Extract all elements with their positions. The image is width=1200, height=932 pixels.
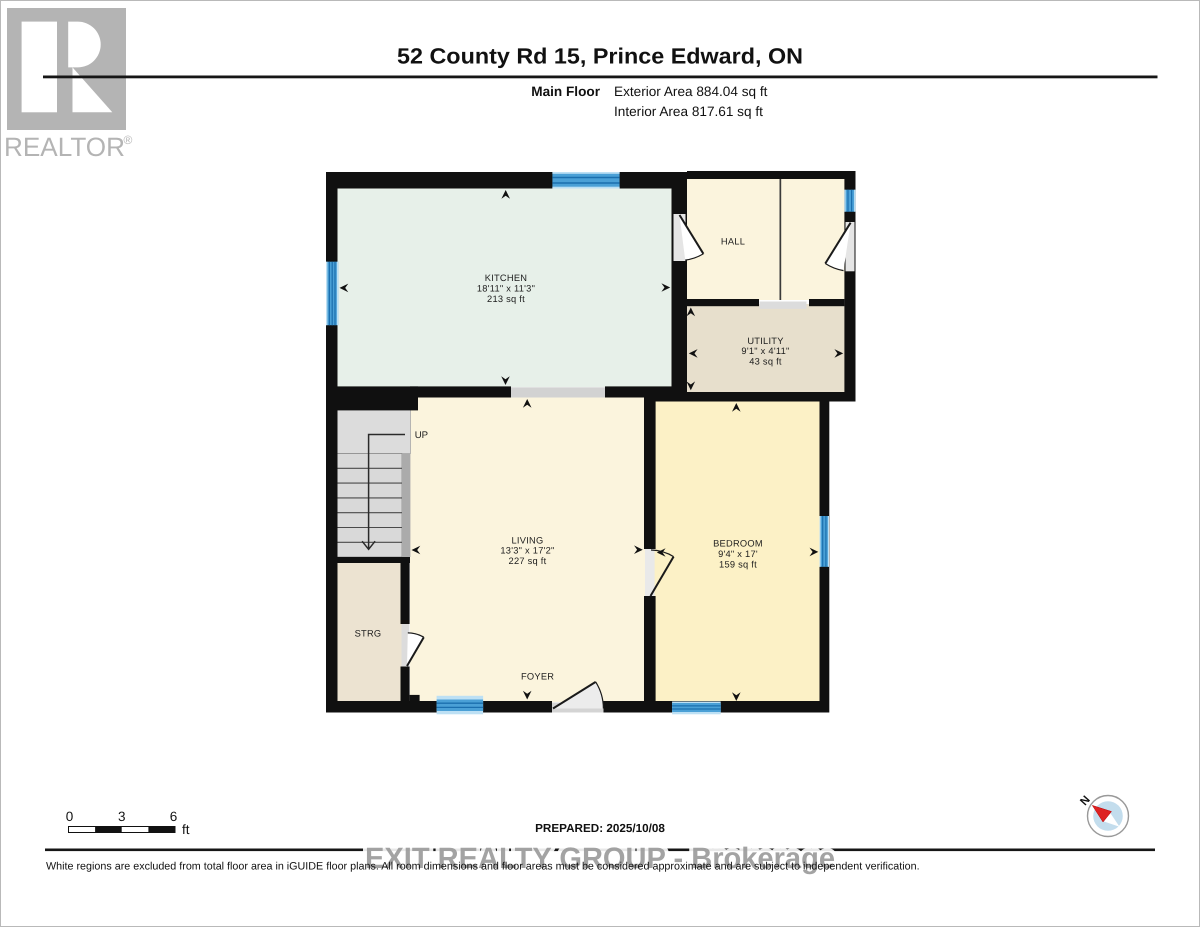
svg-text:REALTOR: REALTOR <box>4 132 125 162</box>
svg-text:3: 3 <box>118 809 126 824</box>
svg-text:227 sq ft: 227 sq ft <box>509 556 547 566</box>
svg-text:9'4" x 17': 9'4" x 17' <box>718 549 758 559</box>
svg-text:UP: UP <box>415 430 428 441</box>
svg-text:UTILITY: UTILITY <box>747 336 783 346</box>
svg-text:18'11" x 11'3": 18'11" x 11'3" <box>477 284 535 294</box>
svg-text:STRG: STRG <box>355 629 382 639</box>
svg-text:13'3" x 17'2": 13'3" x 17'2" <box>500 546 554 556</box>
svg-text:0: 0 <box>66 809 74 824</box>
svg-text:HALL: HALL <box>721 237 745 247</box>
svg-text:6: 6 <box>170 809 178 824</box>
svg-text:159 sq ft: 159 sq ft <box>719 559 757 569</box>
svg-text:ft: ft <box>182 822 190 837</box>
svg-text:White regions are excluded fro: White regions are excluded from total fl… <box>46 861 920 873</box>
svg-text:BEDROOM: BEDROOM <box>713 539 763 549</box>
svg-text:Exterior Area 884.04 sq ft: Exterior Area 884.04 sq ft <box>614 84 768 99</box>
svg-text:Interior Area 817.61 sq ft: Interior Area 817.61 sq ft <box>614 104 763 119</box>
svg-text:213 sq ft: 213 sq ft <box>487 294 525 304</box>
svg-text:FOYER: FOYER <box>521 672 554 682</box>
svg-text:52 County Rd 15, Prince Edward: 52 County Rd 15, Prince Edward, ON <box>397 44 803 69</box>
svg-text:9'1" x 4'11": 9'1" x 4'11" <box>741 346 789 356</box>
svg-text:Main Floor: Main Floor <box>531 84 600 99</box>
svg-text:LIVING: LIVING <box>512 535 544 545</box>
svg-text:PREPARED: 2025/10/08: PREPARED: 2025/10/08 <box>535 822 665 835</box>
svg-text:43 sq ft: 43 sq ft <box>749 357 782 367</box>
svg-text:KITCHEN: KITCHEN <box>485 273 528 283</box>
svg-text:®: ® <box>124 133 133 147</box>
